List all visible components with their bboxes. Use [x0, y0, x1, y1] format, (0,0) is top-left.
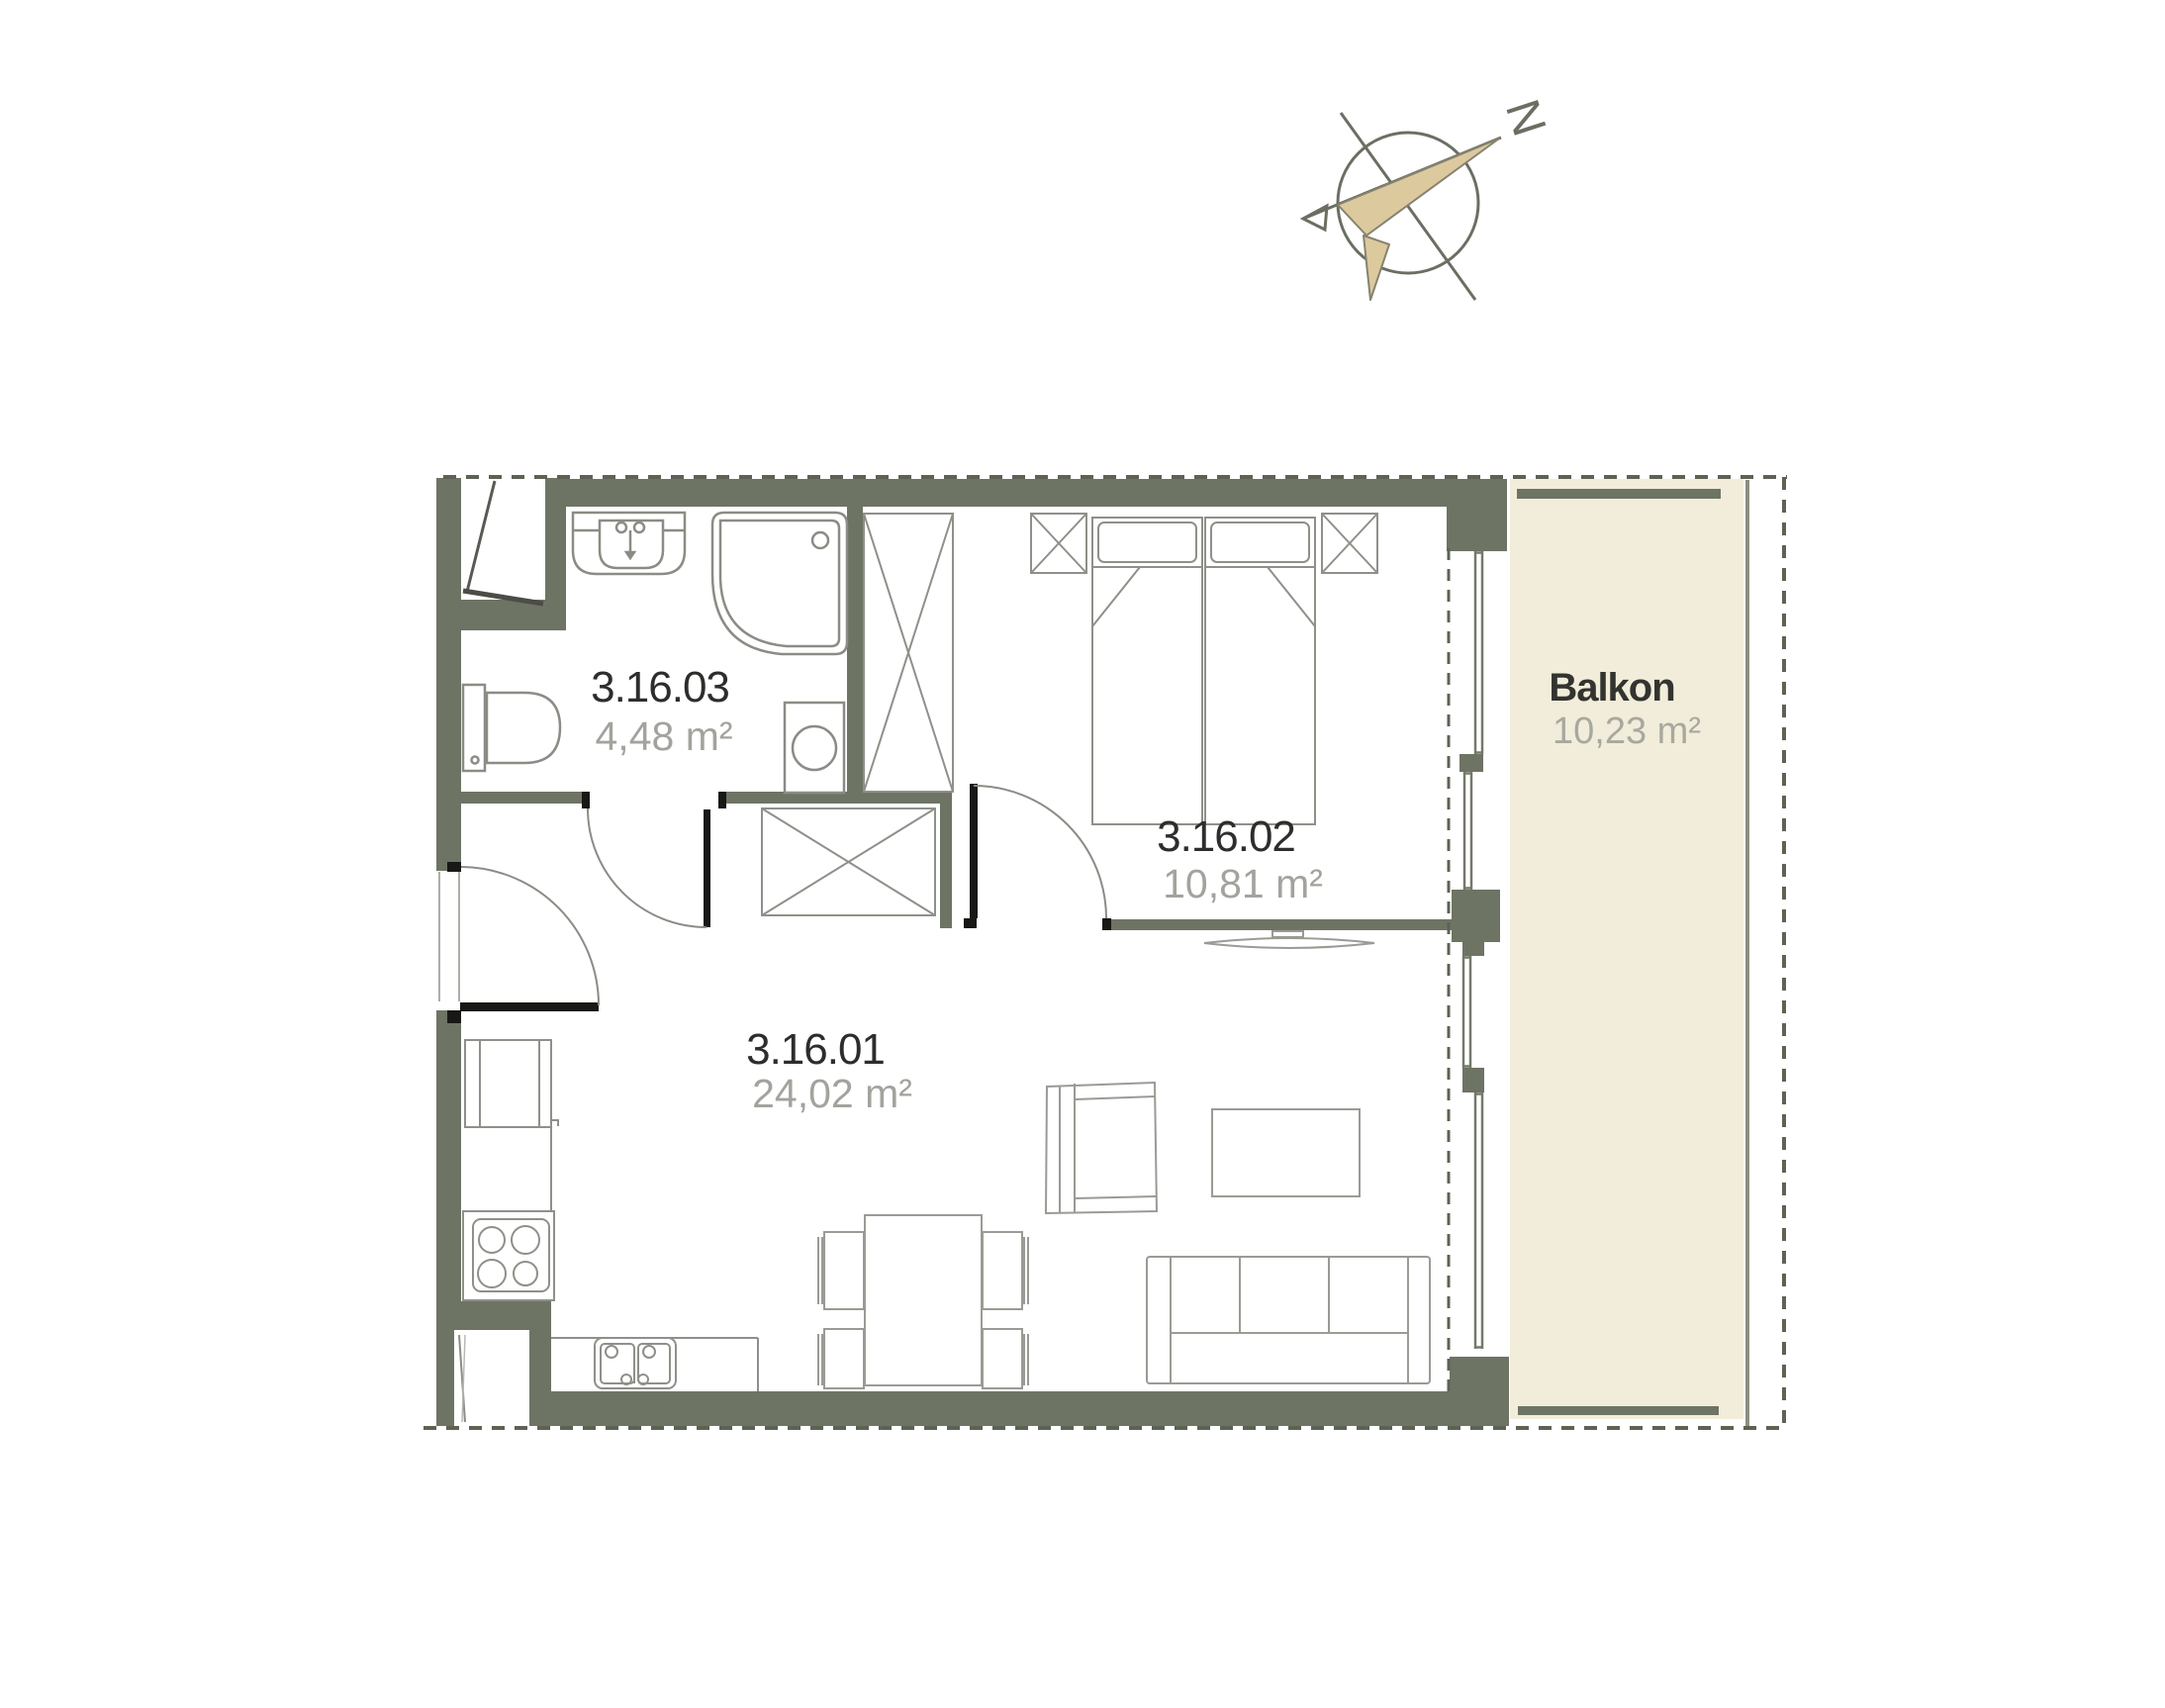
svg-text:3.16.01: 3.16.01 [746, 1025, 885, 1074]
svg-text:10,23 m²: 10,23 m² [1553, 711, 1701, 752]
svg-text:Balkon: Balkon [1549, 666, 1674, 710]
svg-text:3.16.02: 3.16.02 [1157, 812, 1295, 861]
svg-text:10,81 m²: 10,81 m² [1163, 861, 1323, 906]
svg-text:4,48 m²: 4,48 m² [596, 713, 733, 759]
svg-text:24,02 m²: 24,02 m² [752, 1071, 912, 1116]
svg-text:3.16.03: 3.16.03 [591, 663, 729, 712]
